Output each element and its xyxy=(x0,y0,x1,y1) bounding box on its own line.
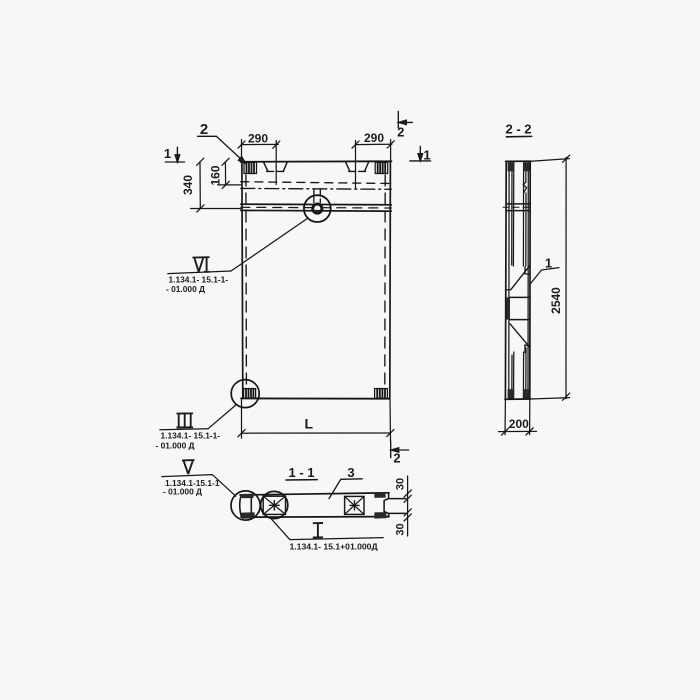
svg-text:1: 1 xyxy=(423,148,430,163)
svg-text:3: 3 xyxy=(347,465,354,480)
svg-text:1.134.1- 15.1-1-: 1.134.1- 15.1-1- xyxy=(161,430,221,440)
svg-text:290: 290 xyxy=(364,131,384,145)
svg-text:290: 290 xyxy=(248,132,268,146)
svg-text:- 01.000 Д: - 01.000 Д xyxy=(163,487,202,497)
svg-text:340: 340 xyxy=(181,175,195,195)
svg-text:2 - 2: 2 - 2 xyxy=(505,122,531,137)
svg-text:- 01.000 Д: - 01.000 Д xyxy=(156,441,195,451)
svg-text:2: 2 xyxy=(200,121,208,138)
svg-text:2: 2 xyxy=(393,451,400,466)
svg-text:1 - 1: 1 - 1 xyxy=(288,465,314,480)
svg-text:2: 2 xyxy=(397,125,404,140)
svg-text:160: 160 xyxy=(209,165,223,185)
svg-text:1.134.1- 15.1+01.000Д: 1.134.1- 15.1+01.000Д xyxy=(290,541,378,551)
svg-text:200: 200 xyxy=(509,417,529,431)
svg-text:30: 30 xyxy=(395,478,407,490)
svg-text:30: 30 xyxy=(395,523,407,535)
svg-text:2540: 2540 xyxy=(549,287,563,314)
svg-text:1: 1 xyxy=(164,146,171,161)
svg-text:1.134.1- 15.1-1-: 1.134.1- 15.1-1- xyxy=(169,274,229,284)
svg-text:L: L xyxy=(305,416,314,432)
svg-text:- 01.000 Д: - 01.000 Д xyxy=(166,284,205,294)
svg-text:1: 1 xyxy=(545,256,552,271)
